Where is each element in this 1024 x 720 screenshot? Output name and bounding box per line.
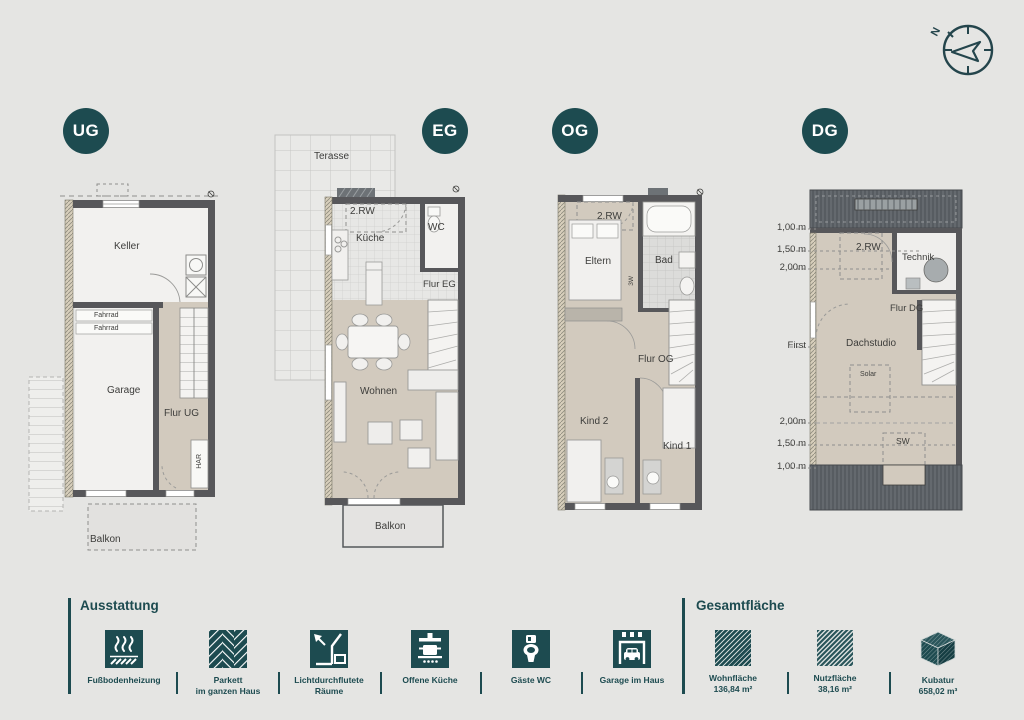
floor-badge-dg: DG <box>802 108 848 154</box>
room-label-dachstudio: Dachstudio <box>846 339 896 349</box>
ridge-label-first: First <box>770 341 806 351</box>
legend-item-nutzflaeche: Nutzfläche 38,16 m² <box>780 630 890 696</box>
room-label-rw-og: 2.RW <box>597 212 622 222</box>
room-label-3w: 3W <box>629 276 636 286</box>
legend-divider <box>380 672 382 694</box>
legend-divider <box>787 672 789 694</box>
room-label-fahrrad-2: Fahrrad <box>94 325 119 332</box>
room-label-kind1: Kind 1 <box>663 442 691 452</box>
legend-item-garage: Garage im Haus <box>577 630 687 686</box>
floorplan-ug: Keller Fahrrad Fahrrad Garage Flur UG HA… <box>28 182 228 557</box>
legend-item-daylight: Lichtdurchflutete Räume <box>274 630 384 698</box>
floor-badge-ug: UG <box>63 108 109 154</box>
legend-item-wohnflaeche: Wohnfläche 136,84 m² <box>678 630 788 696</box>
floorplan-sheet: N UG EG OG DG <box>0 0 1024 720</box>
room-label-rw-dg: 2.RW <box>856 243 881 253</box>
room-label-solar: Solar <box>860 371 876 378</box>
floorplan-dg: 1,00 m 1,50 m 2,00m First 2,00m 1,50 m 1… <box>770 182 975 522</box>
legend-divider <box>278 672 280 694</box>
legend-label-line1: Offene Küche <box>375 675 485 686</box>
room-label-kind2: Kind 2 <box>580 417 608 427</box>
compass: N <box>930 18 1000 82</box>
compass-icon <box>930 18 1000 82</box>
floor-badge-ug-label: UG <box>73 121 100 141</box>
volume-cube-icon <box>918 630 958 668</box>
floor-heating-icon <box>105 630 143 668</box>
guest-wc-icon <box>512 630 550 668</box>
legend-value: 658,02 m³ <box>883 686 993 697</box>
open-kitchen-icon <box>411 630 449 668</box>
legend-label: Kubatur <box>883 675 993 686</box>
legend-divider <box>176 672 178 694</box>
floorplan-og: 2.RW Eltern Bad 3W Flur OG Kind 2 Kind 1 <box>545 182 720 527</box>
garage-icon <box>613 630 651 668</box>
room-label-eltern: Eltern <box>585 257 611 267</box>
legend-label-line1: Lichtdurchflutete <box>274 675 384 686</box>
parquet-icon <box>209 630 247 668</box>
room-label-rw-eg: 2.RW <box>350 207 375 217</box>
legend-label-line1: Garage im Haus <box>577 675 687 686</box>
floor-badge-og-label: OG <box>561 121 588 141</box>
living-area-swatch <box>715 630 751 666</box>
legend-divider <box>581 672 583 694</box>
legend-item-floor-heating: Fußbodenheizung <box>69 630 179 686</box>
floorplan-og-drawing <box>545 182 720 527</box>
floorplan-eg-drawing <box>270 130 482 552</box>
room-label-bad: Bad <box>655 256 673 266</box>
room-label-garage: Garage <box>107 386 140 396</box>
dim-label-dg-bottom-3: 1,00 m <box>770 462 806 472</box>
dim-label-dg-top-3: 2,00m <box>770 263 806 273</box>
room-label-balkon-ug: Balkon <box>90 535 121 545</box>
legend-label-line1: Gäste WC <box>476 675 586 686</box>
daylight-rooms-icon <box>310 630 348 668</box>
room-label-flur-og: Flur OG <box>638 355 674 365</box>
dim-label-dg-bottom-2: 1,50 m <box>770 439 806 449</box>
legend-label-line1: Fußbodenheizung <box>69 675 179 686</box>
room-label-wohnen: Wohnen <box>360 387 397 397</box>
ausstattung-title: Ausstattung <box>80 598 159 613</box>
legend-label: Nutzfläche <box>780 673 890 684</box>
legend-item-guest-wc: Gäste WC <box>476 630 586 686</box>
dim-label-dg-bottom-1: 2,00m <box>770 417 806 427</box>
usable-area-swatch <box>817 630 853 666</box>
room-label-technik: Technik <box>902 253 934 263</box>
room-label-kueche: Küche <box>356 234 384 244</box>
floorplan-ug-drawing <box>28 182 228 557</box>
room-label-wc: WC <box>428 223 445 233</box>
dim-label-dg-top-1: 1,00 m <box>770 223 806 233</box>
room-label-flur-ug: Flur UG <box>164 409 199 419</box>
room-label-flur-dg: Flur DG <box>890 304 923 314</box>
legend-label-line1: Parkett <box>173 675 283 686</box>
legend-divider <box>889 672 891 694</box>
floor-badge-og: OG <box>552 108 598 154</box>
room-label-sw: SW <box>896 437 910 446</box>
legend-item-open-kitchen: Offene Küche <box>375 630 485 686</box>
room-label-flur-eg: Flur EG <box>423 280 456 290</box>
floor-badge-dg-label: DG <box>812 121 839 141</box>
legend-item-parquet: Parkett im ganzen Haus <box>173 630 283 698</box>
legend-item-kubatur: Kubatur 658,02 m³ <box>883 630 993 698</box>
legend-label-line2: Räume <box>274 686 384 697</box>
gesamtflaeche-title: Gesamtfläche <box>696 598 785 613</box>
legend-value: 136,84 m² <box>678 684 788 695</box>
room-label-fahrrad-1: Fahrrad <box>94 312 119 319</box>
room-label-keller: Keller <box>114 242 140 252</box>
room-label-har: HAR <box>196 454 203 469</box>
legend-label-line2: im ganzen Haus <box>173 686 283 697</box>
room-label-balkon-eg: Balkon <box>375 522 406 532</box>
legend-value: 38,16 m² <box>780 684 890 695</box>
floorplan-eg: Terasse 2.RW Küche WC Flur EG Wohnen Bal… <box>270 130 482 552</box>
room-label-terasse: Terasse <box>314 152 349 162</box>
legend-divider <box>480 672 482 694</box>
dim-label-dg-top-2: 1,50 m <box>770 245 806 255</box>
legend-label: Wohnfläche <box>678 673 788 684</box>
